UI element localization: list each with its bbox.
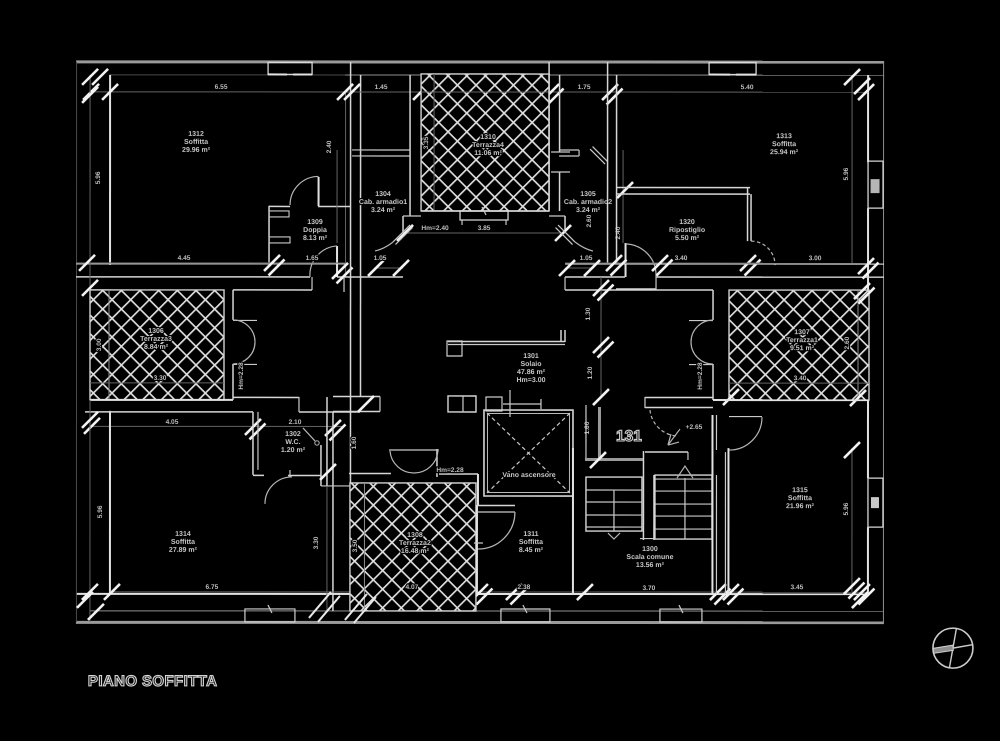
svg-text:9.51 m²: 9.51 m² bbox=[790, 345, 815, 352]
svg-text:2.60: 2.60 bbox=[844, 336, 851, 349]
svg-text:Doppia: Doppia bbox=[303, 227, 327, 234]
svg-text:Hm=2.28: Hm=2.28 bbox=[697, 362, 704, 390]
svg-text:Soffitta: Soffitta bbox=[171, 539, 195, 546]
svg-text:Cab. armadio2: Cab. armadio2 bbox=[564, 199, 612, 206]
svg-text:1311: 1311 bbox=[523, 531, 538, 538]
svg-text:Hm=3.00: Hm=3.00 bbox=[516, 377, 545, 384]
svg-text:3.35: 3.35 bbox=[423, 136, 430, 149]
svg-text:6.75: 6.75 bbox=[206, 584, 219, 591]
svg-text:Hm=2.28: Hm=2.28 bbox=[436, 467, 464, 474]
svg-text:1301: 1301 bbox=[523, 353, 539, 360]
svg-text:5.50 m²: 5.50 m² bbox=[675, 235, 700, 242]
svg-text:16.48 m²: 16.48 m² bbox=[401, 548, 430, 555]
svg-text:4.05: 4.05 bbox=[166, 419, 179, 426]
svg-text:3.30: 3.30 bbox=[154, 375, 167, 382]
svg-text:Terrazza4: Terrazza4 bbox=[472, 142, 504, 149]
svg-text:1310: 1310 bbox=[480, 134, 496, 141]
svg-text:1302: 1302 bbox=[285, 431, 301, 438]
svg-text:3.70: 3.70 bbox=[643, 585, 656, 592]
svg-text:13.56 m²: 13.56 m² bbox=[636, 562, 665, 569]
svg-text:Scala comune: Scala comune bbox=[626, 554, 673, 561]
svg-text:1312: 1312 bbox=[188, 131, 204, 138]
svg-text:131: 131 bbox=[616, 428, 642, 445]
svg-text:2.40: 2.40 bbox=[326, 140, 333, 153]
svg-text:Soffitta: Soffitta bbox=[772, 141, 796, 148]
svg-text:4.07: 4.07 bbox=[406, 584, 419, 591]
svg-text:1304: 1304 bbox=[375, 191, 391, 198]
svg-text:1313: 1313 bbox=[776, 133, 792, 140]
svg-text:Soffitta: Soffitta bbox=[184, 139, 208, 146]
svg-text:25.94 m²: 25.94 m² bbox=[770, 149, 799, 156]
svg-text:8.84 m²: 8.84 m² bbox=[144, 344, 169, 351]
svg-text:2.10: 2.10 bbox=[289, 419, 302, 426]
svg-text:PIANO SOFFITTA: PIANO SOFFITTA bbox=[88, 673, 217, 690]
svg-text:27.89 m²: 27.89 m² bbox=[169, 547, 198, 554]
svg-text:Soffitta: Soffitta bbox=[519, 539, 543, 546]
svg-text:11.06 m²: 11.06 m² bbox=[474, 150, 502, 157]
svg-text:1315: 1315 bbox=[792, 487, 808, 494]
svg-text:1300: 1300 bbox=[642, 546, 658, 553]
svg-text:1.75: 1.75 bbox=[578, 84, 591, 91]
svg-text:3.45: 3.45 bbox=[791, 584, 804, 591]
svg-text:3.40: 3.40 bbox=[794, 375, 807, 382]
svg-text:1314: 1314 bbox=[175, 531, 191, 538]
svg-text:5.96: 5.96 bbox=[95, 171, 102, 184]
svg-text:Soffitta: Soffitta bbox=[788, 495, 812, 502]
svg-text:3.30: 3.30 bbox=[313, 536, 320, 549]
svg-text:W.C.: W.C. bbox=[285, 439, 300, 446]
svg-text:Solaio: Solaio bbox=[520, 361, 541, 368]
svg-text:3.00: 3.00 bbox=[96, 338, 103, 351]
svg-text:5.40: 5.40 bbox=[741, 84, 754, 91]
svg-text:Terrazza3: Terrazza3 bbox=[140, 336, 172, 343]
svg-text:5.96: 5.96 bbox=[843, 502, 850, 515]
svg-text:8.13 m²: 8.13 m² bbox=[303, 235, 328, 242]
svg-text:1.60: 1.60 bbox=[351, 436, 358, 449]
svg-text:Terrazza1: Terrazza1 bbox=[786, 337, 818, 344]
svg-text:Vano ascensore: Vano ascensore bbox=[502, 472, 555, 479]
svg-text:1307: 1307 bbox=[794, 329, 810, 336]
svg-text:Hm=2.28: Hm=2.28 bbox=[238, 362, 245, 390]
svg-text:6.55: 6.55 bbox=[215, 84, 228, 91]
svg-text:2.60: 2.60 bbox=[586, 214, 593, 227]
svg-text:5.96: 5.96 bbox=[97, 505, 104, 518]
svg-text:1.45: 1.45 bbox=[375, 84, 388, 91]
svg-text:1.65: 1.65 bbox=[306, 255, 319, 262]
svg-text:3.50: 3.50 bbox=[352, 539, 359, 552]
svg-text:Ripostiglio: Ripostiglio bbox=[669, 227, 705, 234]
svg-text:4.45: 4.45 bbox=[178, 255, 191, 262]
svg-text:1308: 1308 bbox=[407, 532, 423, 539]
svg-text:Terrazza2: Terrazza2 bbox=[399, 540, 431, 547]
svg-text:3.24 m²: 3.24 m² bbox=[576, 207, 601, 214]
svg-text:29.96 m²: 29.96 m² bbox=[182, 147, 211, 154]
svg-text:2.38: 2.38 bbox=[518, 584, 531, 591]
svg-text:8.45 m²: 8.45 m² bbox=[519, 547, 544, 554]
svg-text:1305: 1305 bbox=[580, 191, 596, 198]
svg-text:1.05: 1.05 bbox=[374, 255, 387, 262]
svg-text:1309: 1309 bbox=[307, 219, 323, 226]
svg-text:21.96 m²: 21.96 m² bbox=[786, 503, 815, 510]
svg-text:3.24 m²: 3.24 m² bbox=[371, 207, 396, 214]
svg-text:1.60: 1.60 bbox=[584, 421, 591, 434]
svg-text:3.00: 3.00 bbox=[809, 255, 822, 262]
svg-text:1.20: 1.20 bbox=[587, 366, 594, 379]
svg-text:3.85: 3.85 bbox=[478, 225, 491, 232]
svg-text:Hm=2.40: Hm=2.40 bbox=[421, 225, 449, 232]
svg-text:1.30: 1.30 bbox=[585, 307, 592, 320]
svg-text:1.20 m²: 1.20 m² bbox=[281, 447, 306, 454]
svg-text:Cab. armadio1: Cab. armadio1 bbox=[359, 199, 407, 206]
svg-text:+2.65: +2.65 bbox=[686, 424, 703, 431]
svg-text:47.86 m²: 47.86 m² bbox=[517, 369, 546, 376]
svg-text:5.96: 5.96 bbox=[843, 167, 850, 180]
svg-text:1306: 1306 bbox=[148, 328, 164, 335]
svg-text:1320: 1320 bbox=[679, 219, 695, 226]
svg-text:3.40: 3.40 bbox=[675, 255, 688, 262]
svg-text:1.05: 1.05 bbox=[580, 255, 593, 262]
